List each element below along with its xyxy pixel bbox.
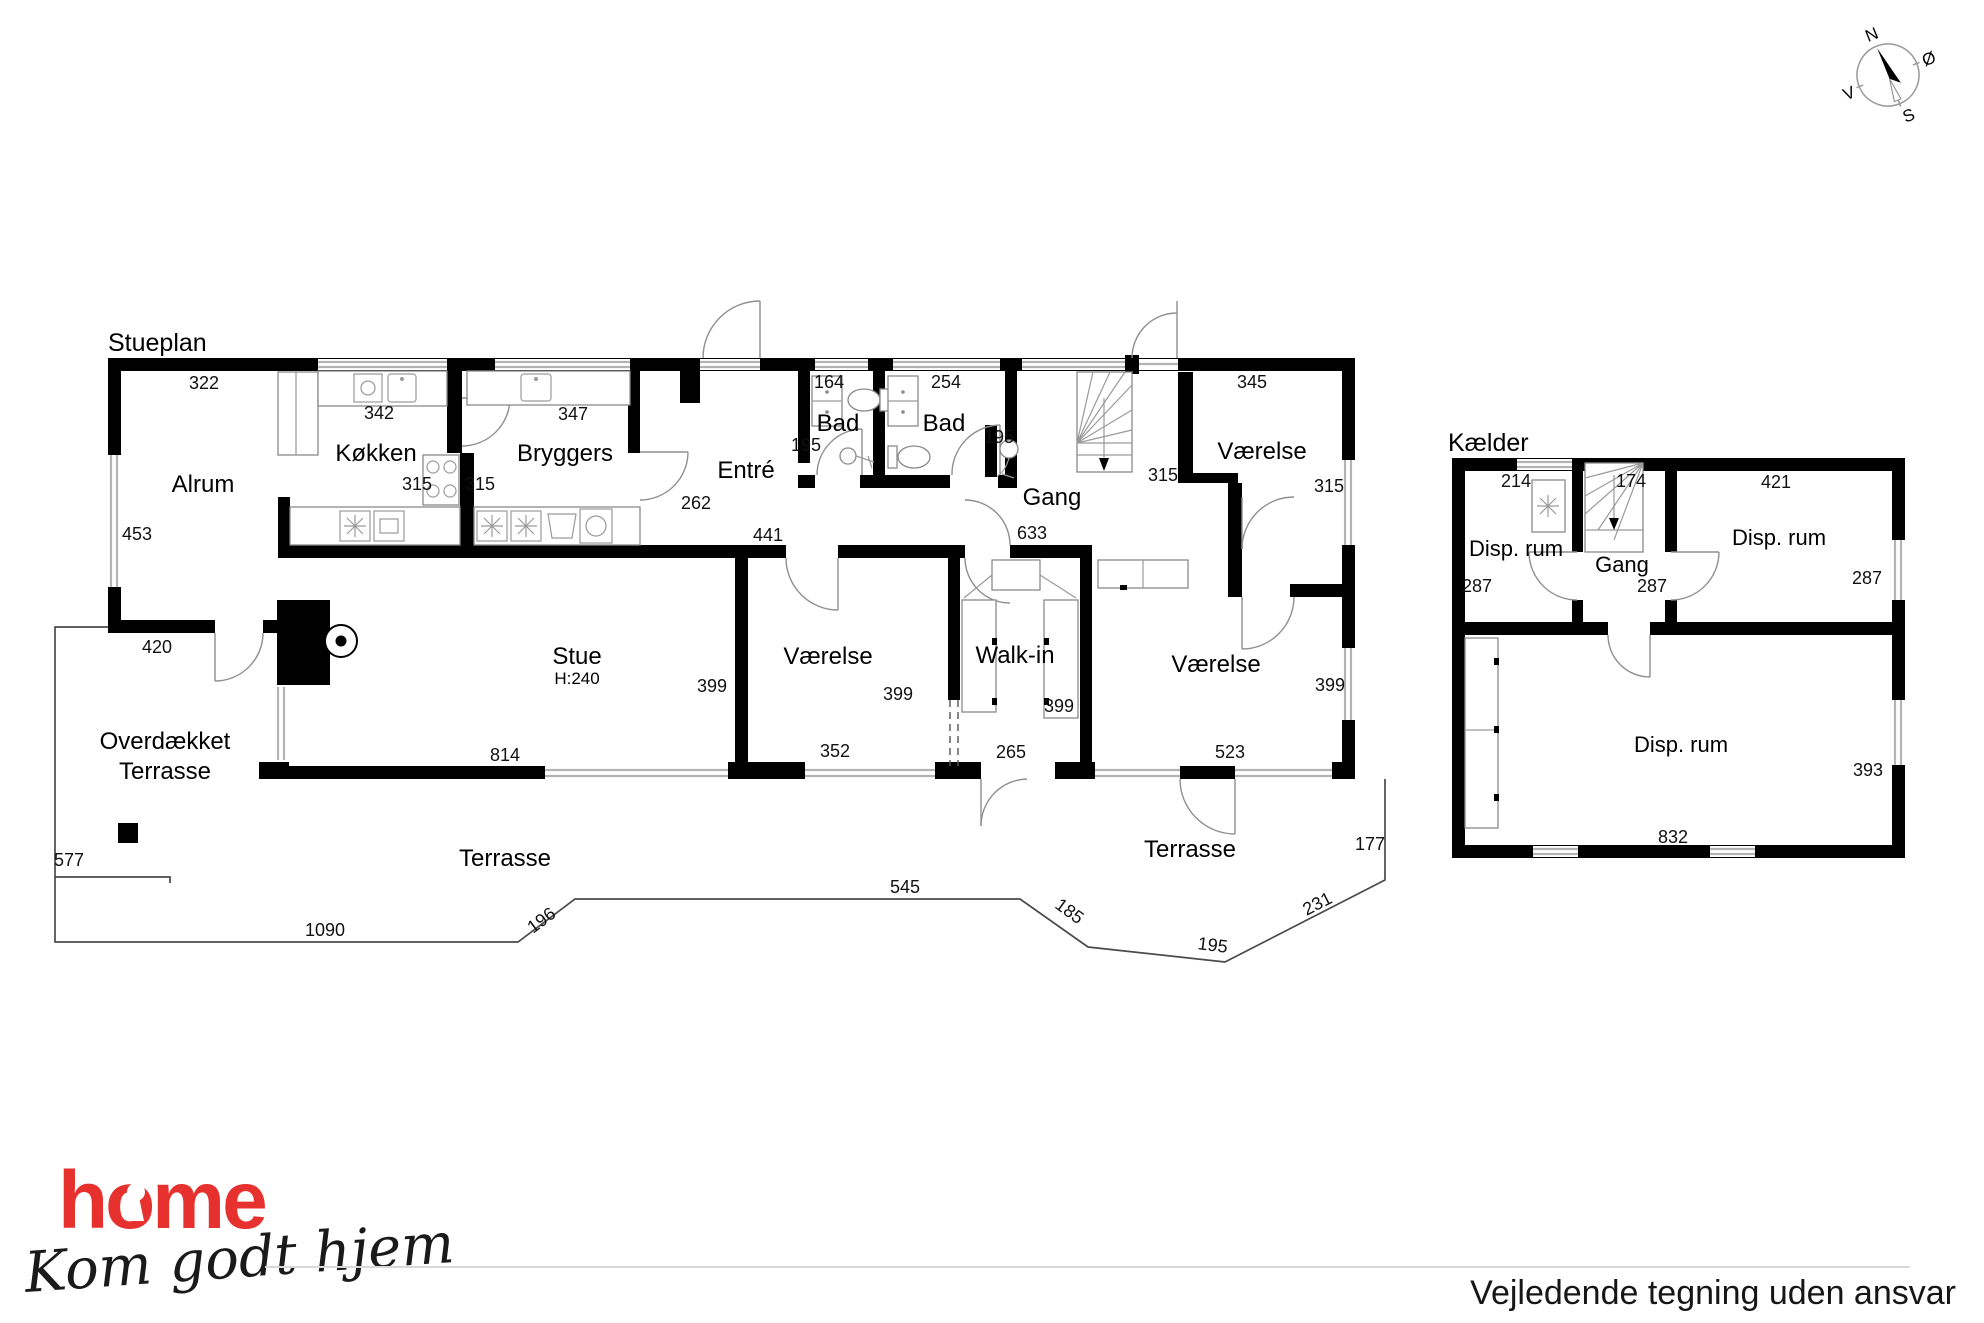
room-label-walkin: Walk-in: [975, 642, 1054, 669]
dim-bad2-width: 254: [931, 372, 961, 392]
footer: Vejledende tegning uden ansvar: [265, 1267, 1956, 1312]
room-label-terrasse-right: Terrasse: [1144, 836, 1236, 863]
dim-vaerelse-se-depth: 399: [1315, 675, 1345, 695]
dim-vaerelse-mid-width: 352: [820, 741, 850, 761]
dim-overdaekket-width: 420: [142, 637, 172, 657]
dim-gang-width: 633: [1017, 523, 1047, 543]
room-label-vaerelse-se: Værelse: [1171, 651, 1260, 678]
room-label-bad1: Bad: [817, 410, 860, 437]
room-label-gang: Gang: [1023, 484, 1082, 511]
stairs-icon: [1077, 372, 1132, 472]
dim-disp2-width: 421: [1761, 472, 1791, 492]
kaelder-walls: [1452, 458, 1905, 858]
dim-bryggers-depth: 315: [465, 474, 495, 494]
room-label-disp3: Disp. rum: [1634, 732, 1728, 757]
bedroom-wardrobe: [1098, 560, 1188, 590]
dim-vaerelse-ne-depth: 315: [1314, 476, 1344, 496]
room-label-vaerelse-ne: Værelse: [1217, 438, 1306, 465]
dim-terrasse-177: 177: [1355, 834, 1385, 854]
compass-south-label: S: [1900, 105, 1918, 127]
dim-koekken-depth: 315: [402, 474, 432, 494]
dim-gang-depth: 315: [1148, 465, 1178, 485]
room-label-stue: Stue: [552, 643, 601, 670]
room-label-entre: Entré: [717, 457, 774, 484]
dim-terrasse-195: 195: [1197, 933, 1229, 957]
dim-vaerelse-mid-depth: 399: [883, 684, 913, 704]
dim-entre-depth: 262: [681, 493, 711, 513]
compass-west-label: V: [1840, 82, 1858, 104]
room-label-stue-height: H:240: [554, 669, 599, 688]
dim-kaelder-stairs-width: 174: [1616, 471, 1646, 491]
room-label-terrasse-left: Terrasse: [459, 845, 551, 872]
dim-vaerelse-ne-width: 345: [1237, 372, 1267, 392]
terrace-post: [118, 823, 138, 843]
compass-north-label: N: [1862, 24, 1881, 46]
freezer-icon: [1532, 480, 1565, 532]
dim-vaerelse-se-width: 523: [1215, 742, 1245, 762]
room-label-disp1: Disp. rum: [1469, 536, 1563, 561]
room-label-vaerelse-mid: Værelse: [783, 643, 872, 670]
brand-logo: home Kom godt hjem: [21, 1155, 456, 1306]
dim-bad1-width: 164: [814, 372, 844, 392]
toilet-icon: [848, 389, 889, 411]
room-label-kaelder-gang: Gang: [1595, 552, 1649, 577]
hand-basin-icon: [840, 448, 874, 468]
dim-disp1-depth: 287: [1462, 576, 1492, 596]
dim-terrasse-196: 196: [523, 903, 559, 937]
compass-east-label: Ø: [1919, 48, 1938, 71]
toilet-icon: [888, 446, 930, 468]
dim-terrasse-185: 185: [1051, 894, 1087, 928]
room-label-disp2: Disp. rum: [1732, 525, 1826, 550]
dim-disp3-width: 832: [1658, 827, 1688, 847]
floorplan-page: Stueplan Alrum Køkken Bryggers Entré Bad…: [0, 0, 1984, 1323]
dim-koekken-width: 342: [364, 403, 394, 423]
room-label-bryggers: Bryggers: [517, 440, 613, 467]
dim-entre-width: 441: [753, 525, 783, 545]
dim-kaelder-gang-depth: 287: [1637, 576, 1667, 596]
floorplan-canvas: Stueplan Alrum Køkken Bryggers Entré Bad…: [0, 0, 1984, 1323]
compass-rose: N Ø S V: [1823, 7, 1956, 144]
dim-overdaekket-depth: 577: [54, 850, 84, 870]
kaelder-title: Kælder: [1448, 429, 1529, 457]
room-label-overdaekket-1: Overdækket: [100, 728, 231, 755]
dim-alrum-width: 322: [189, 373, 219, 393]
dim-walkin-width: 265: [996, 742, 1026, 762]
dim-bad2-depth: 195: [984, 427, 1014, 447]
dim-bad1-depth: 195: [791, 435, 821, 455]
disclaimer-text: Vejledende tegning uden ansvar: [1470, 1274, 1956, 1312]
dim-terrasse-1090: 1090: [305, 920, 345, 940]
dim-terrasse-545: 545: [890, 877, 920, 897]
kaelder-closet: [1465, 638, 1499, 828]
wood-stove-icon: [325, 625, 357, 657]
room-label-alrum: Alrum: [172, 471, 235, 498]
tall-cabinet-icon: [278, 372, 318, 455]
dim-walkin-depth: 399: [1044, 696, 1074, 716]
compass-needle-icon: [1877, 45, 1901, 86]
dim-disp2-depth: 287: [1852, 568, 1882, 588]
dim-bryggers-width: 347: [558, 404, 588, 424]
dim-disp1-width: 214: [1501, 471, 1531, 491]
dim-disp3-depth: 393: [1853, 760, 1883, 780]
vanity-icon: [888, 376, 918, 426]
stueplan-title: Stueplan: [108, 329, 207, 357]
dim-stue-depth: 399: [697, 676, 727, 696]
room-label-koekken: Køkken: [335, 440, 416, 467]
room-label-overdaekket-2: Terrasse: [119, 758, 211, 785]
dim-terrasse-231: 231: [1299, 888, 1335, 919]
dim-stue-width: 814: [490, 745, 520, 765]
dim-alrum-depth: 453: [122, 524, 152, 544]
room-label-bad2: Bad: [923, 410, 966, 437]
